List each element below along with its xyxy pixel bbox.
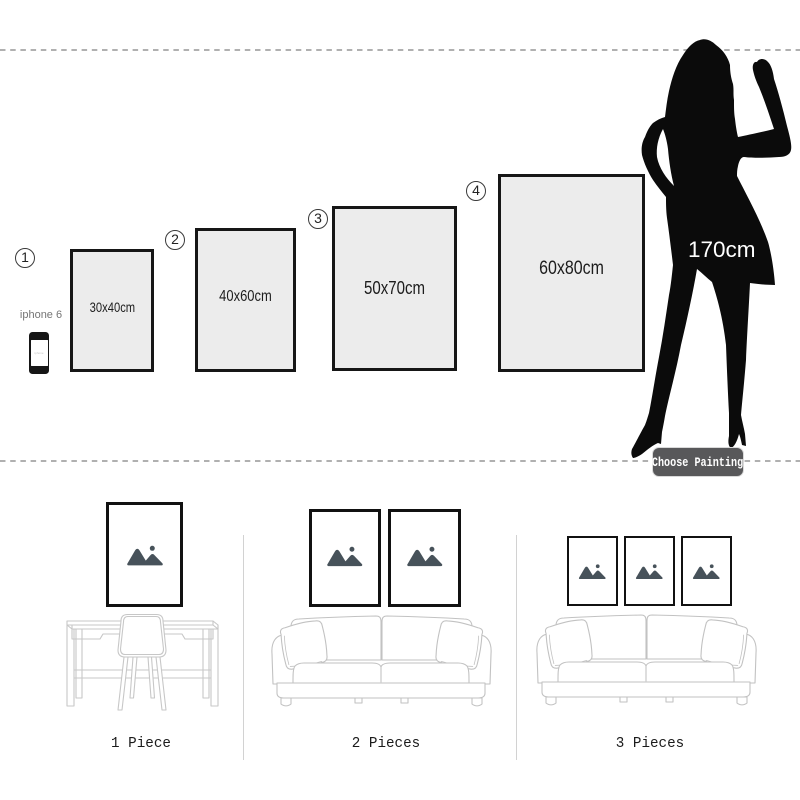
svg-text:170cm: 170cm bbox=[688, 237, 756, 262]
